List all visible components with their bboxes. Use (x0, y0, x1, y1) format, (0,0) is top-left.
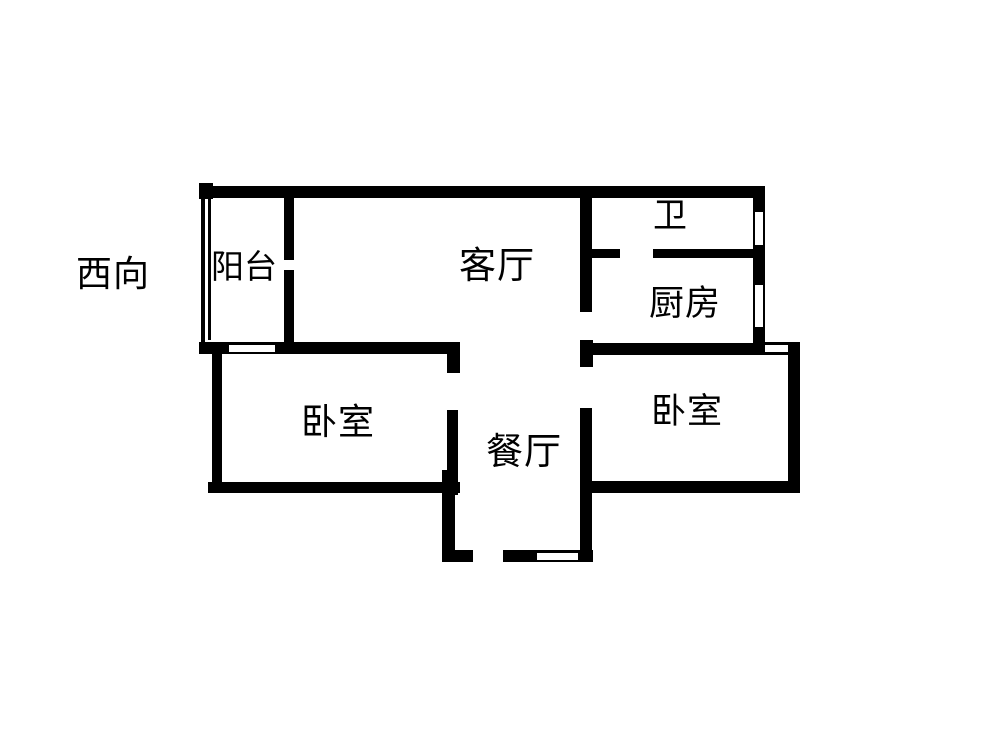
bedroom-right-label: 卧室 (651, 394, 723, 429)
floor-plan: 西向 阳台 客厅 卫 厨房 卧室 餐厅 卧室 (0, 0, 1000, 750)
kitchen-east-window-lower (755, 285, 763, 327)
wall-stub-bedroom-left-door-top (447, 342, 460, 373)
bedroom-right-top-window (765, 342, 788, 355)
wall-bedroom-left-bottom (208, 482, 460, 493)
wall-hall-left-stub (442, 550, 473, 562)
balcony-window-outer-line (201, 196, 205, 343)
wall-kitchen-bottom (580, 343, 765, 355)
wall-hall-right-vertical (580, 493, 592, 562)
bedroom-left-label: 卧室 (301, 404, 375, 440)
wall-bedroom-right-bottom (580, 481, 800, 493)
dining-room-label: 餐厅 (486, 434, 562, 471)
hall-bottom-window (537, 553, 578, 560)
wall-bedroom-right-east (788, 342, 800, 493)
kitchen-label: 厨房 (649, 286, 721, 321)
wall-bath-divider-right (653, 249, 753, 258)
wall-corner-block-bedroom-left (442, 470, 458, 495)
bathroom-label: 卫 (653, 200, 688, 234)
wall-hall-left-vertical (442, 493, 455, 554)
wall-bedroom-left-west (212, 354, 222, 483)
balcony-label: 阳台 (211, 252, 277, 285)
balcony-bedroom-window (229, 345, 275, 352)
orientation-label: 西向 (76, 256, 150, 292)
wall-central-vertical-lower (580, 408, 592, 483)
wall-balcony-right-upper (284, 197, 294, 260)
wall-balcony-right-lower (284, 270, 294, 345)
kitchen-east-window-upper (755, 212, 763, 245)
wall-bath-divider-left (580, 249, 620, 258)
living-room-label: 客厅 (459, 248, 535, 285)
